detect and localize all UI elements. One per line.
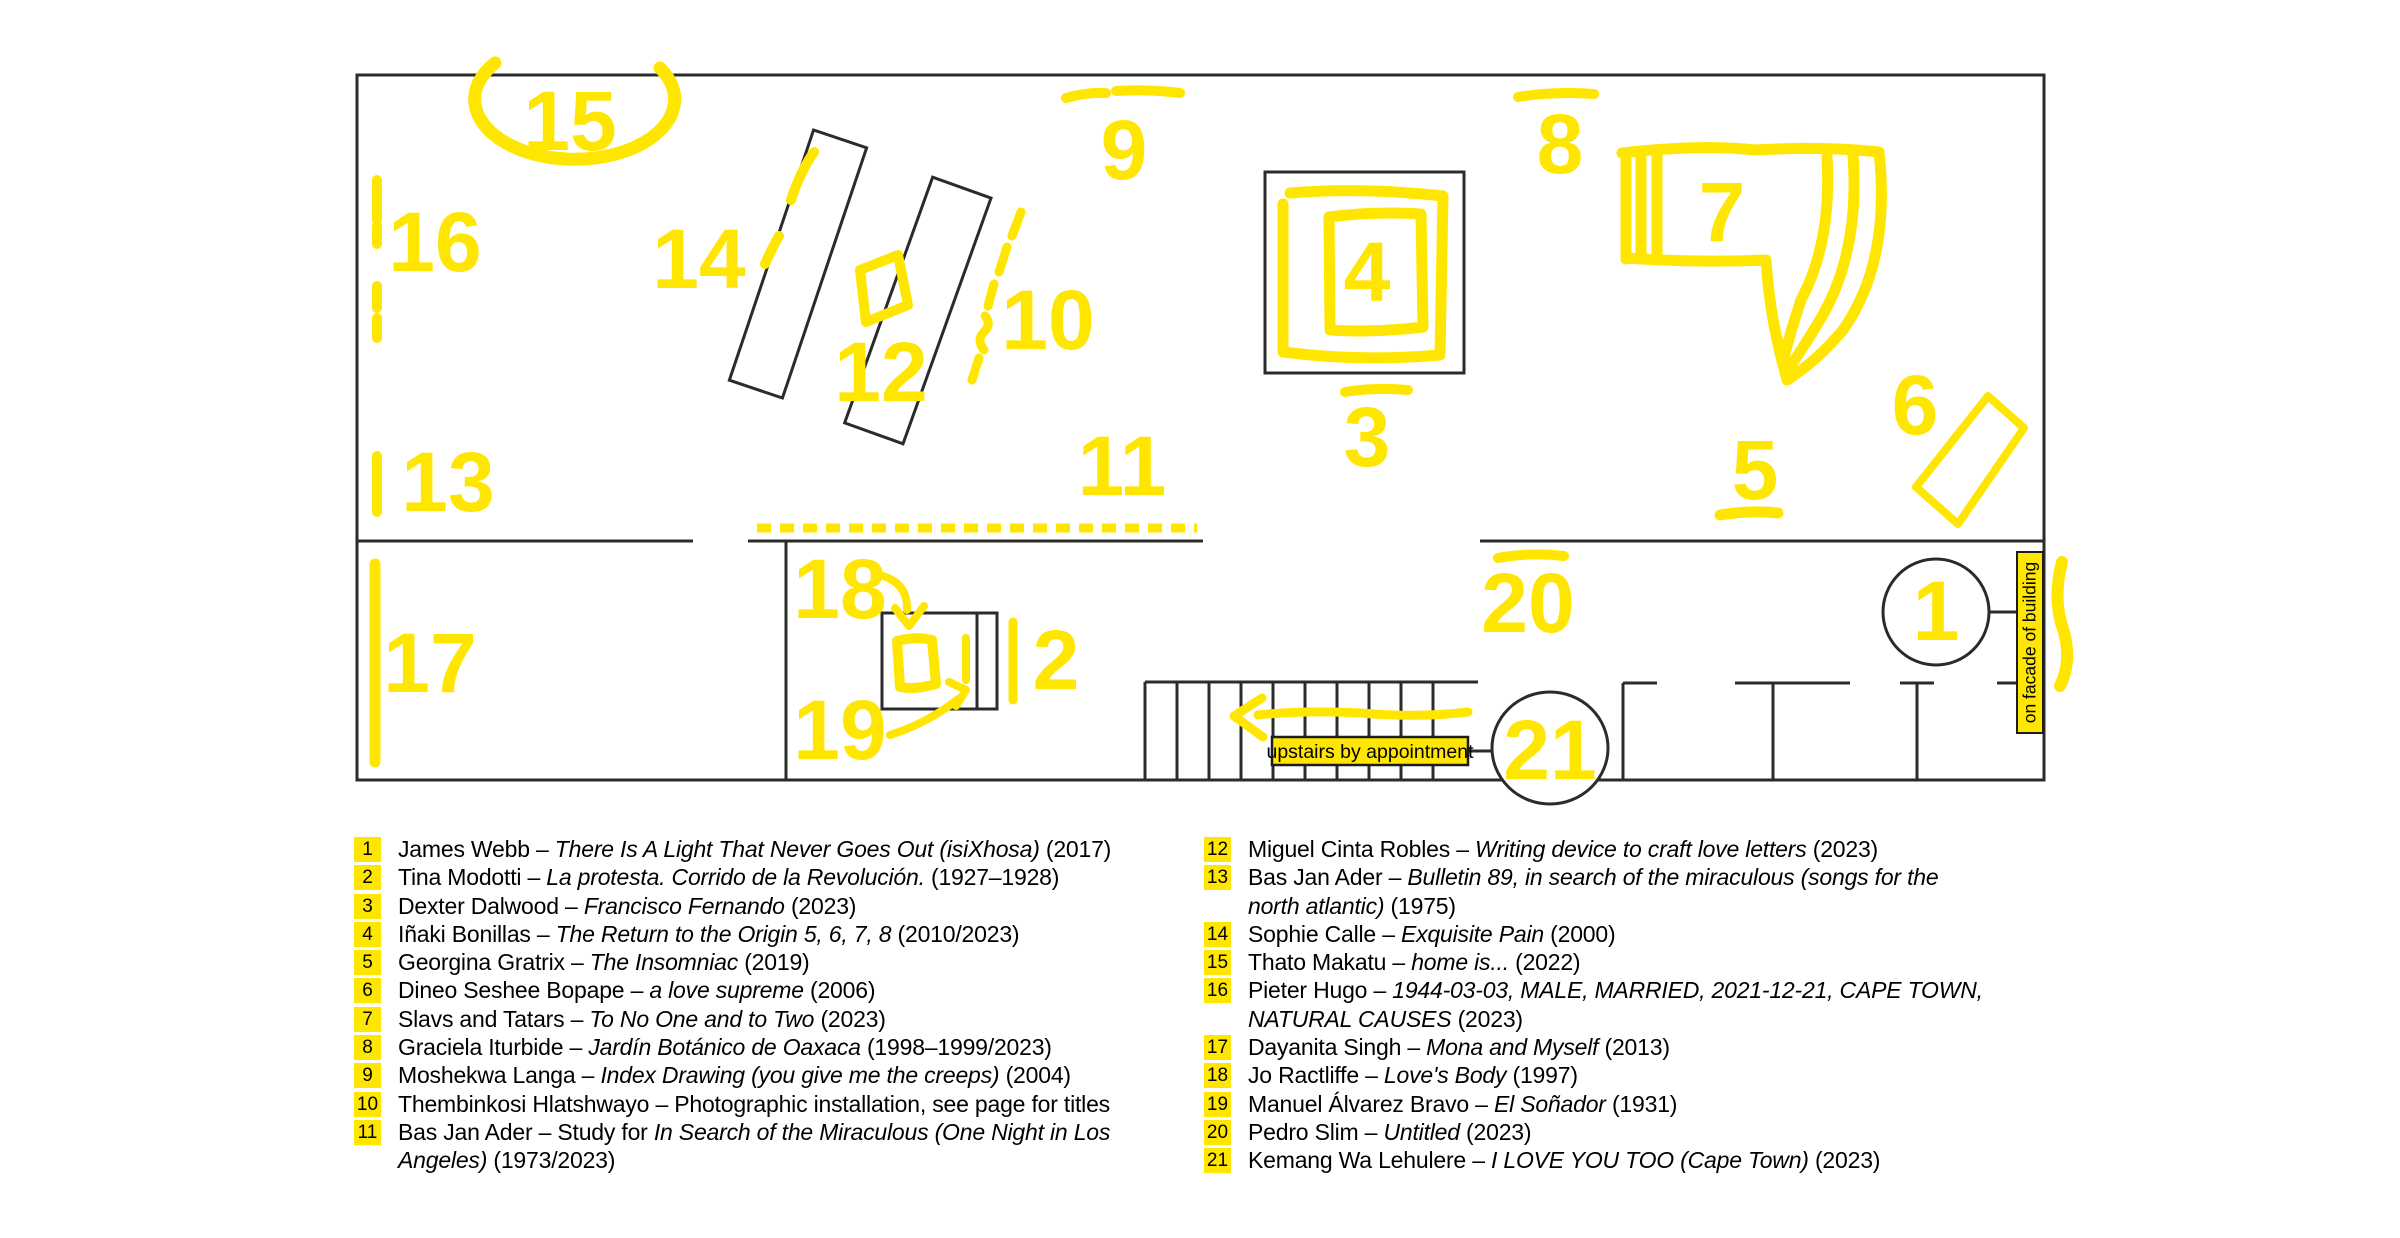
legend-number-badge: 11 [354,1120,381,1145]
plan-marker-6: 6 [1892,358,1939,452]
legend-item: 6Dineo Seshee Bopape – a love supreme (2… [354,977,1111,1005]
upstairs-label: upstairs by appointment [1266,737,1474,765]
walls [357,75,2044,780]
legend-text: Graciela Iturbide – Jardín Botánico de O… [398,1034,1052,1061]
legend-item: 13Bas Jan Ader – Bulletin 89, in search … [1204,864,1983,892]
legend-text: James Webb – There Is A Light That Never… [398,836,1111,863]
plan-marker-4: 4 [1344,225,1391,319]
facade-label-text: on facade of building [2020,562,2041,724]
legend-text: Thembinkosi Hlatshwayo – Photographic in… [398,1091,1110,1118]
plan-marker-9: 9 [1101,103,1148,197]
legend-number-badge: 5 [354,950,381,975]
legend-number-badge: 8 [354,1035,381,1060]
legend-item: 1James Webb – There Is A Light That Neve… [354,836,1111,864]
legend-text: Iñaki Bonillas – The Return to the Origi… [398,921,1019,948]
legend-column-right: 12Miguel Cinta Robles – Writing device t… [1204,836,1983,1176]
legend-item: 17Dayanita Singh – Mona and Myself (2013… [1204,1034,1983,1062]
legend-item: 2Tina Modotti – La protesta. Corrido de … [354,864,1111,892]
legend-item: 15Thato Makatu – home is... (2022) [1204,949,1983,977]
legend-item: 21Kemang Wa Lehulere – I LOVE YOU TOO (C… [1204,1147,1983,1175]
plan-marker-14: 14 [652,212,746,306]
plan-marker-1: 1 [1913,564,1960,658]
legend-text: Moshekwa Langa – Index Drawing (you give… [398,1062,1071,1089]
legend-item: 18Jo Ractliffe – Love's Body (1997) [1204,1062,1983,1090]
legend-number-badge: 4 [354,922,381,947]
legend-number-badge: 13 [1204,865,1231,890]
legend-number-badge: 7 [354,1007,381,1032]
legend-number-badge: 17 [1204,1035,1231,1060]
legend-item: 19Manuel Álvarez Bravo – El Soñador (193… [1204,1091,1983,1119]
legend-item: 9Moshekwa Langa – Index Drawing (you giv… [354,1062,1111,1090]
plan-marker-20: 20 [1481,556,1574,650]
plan-marker-11: 11 [1078,419,1167,513]
legend-text: Miguel Cinta Robles – Writing device to … [1248,836,1878,863]
legend-text: Bas Jan Ader – Bulletin 89, in search of… [1248,864,1938,891]
plan-marker-18: 18 [793,542,886,636]
legend-item: 3Dexter Dalwood – Francisco Fernando (20… [354,893,1111,921]
plan-marker-21: 21 [1503,703,1596,797]
plan-marker-10: 10 [1001,273,1094,367]
legend-text: Jo Ractliffe – Love's Body (1997) [1248,1062,1578,1089]
plan-marker-19: 19 [793,683,886,777]
plan-marker-7: 7 [1699,165,1746,259]
legend-number-badge: 10 [354,1092,381,1117]
partition-1 [1623,683,1657,780]
legend-number-badge: 2 [354,865,381,890]
legend-text: Georgina Gratrix – The Insomniac (2019) [398,949,810,976]
plan-marker-5: 5 [1732,423,1779,517]
legend-text: Bas Jan Ader – Study for In Search of th… [398,1119,1110,1146]
upstairs-label-text: upstairs by appointment [1266,741,1474,763]
legend-column-left: 1James Webb – There Is A Light That Neve… [354,836,1111,1176]
plan-marker-13: 13 [401,435,494,529]
plan-marker-3: 3 [1344,390,1391,484]
legend-item: 5Georgina Gratrix – The Insomniac (2019) [354,949,1111,977]
marker-12-diamond [860,255,908,322]
legend-item: north atlantic) (1975) [1204,893,1983,921]
legend-text: NATURAL CAUSES (2023) [1248,1006,1523,1033]
legend-number-badge: 15 [1204,950,1231,975]
gallery-floor-plan-page: 1 2 3 4 5 6 7 8 9 10 11 12 13 14 15 16 1… [0,0,2400,1238]
legend-text: Dayanita Singh – Mona and Myself (2013) [1248,1034,1670,1061]
legend-item: 16Pieter Hugo – 1944-03-03, MALE, MARRIE… [1204,977,1983,1005]
facade-wavy-line [2057,562,2067,686]
legend-number-badge: 3 [354,894,381,919]
legend-item: Angeles) (1973/2023) [354,1147,1111,1175]
legend-text: Angeles) (1973/2023) [398,1147,615,1174]
legend-number-badge: 6 [354,978,381,1003]
legend-item: 10Thembinkosi Hlatshwayo – Photographic … [354,1091,1111,1119]
legend-text: Thato Makatu – home is... (2022) [1248,949,1580,976]
partition-2 [1735,683,1850,780]
legend-item: 7Slavs and Tatars – To No One and to Two… [354,1006,1111,1034]
legend-number-badge: 16 [1204,978,1231,1003]
legend-item: 20Pedro Slim – Untitled (2023) [1204,1119,1983,1147]
legend-number-badge: 20 [1204,1120,1231,1145]
legend-number-badge: 14 [1204,922,1231,947]
legend-text: Kemang Wa Lehulere – I LOVE YOU TOO (Cap… [1248,1147,1880,1174]
plan-marker-12: 12 [834,325,927,419]
plan-marker-17: 17 [383,616,476,710]
legend-badge-spacer [354,1148,381,1173]
plan-marker-2: 2 [1033,613,1080,707]
plan-marker-15: 15 [523,74,616,168]
legend-number-badge: 21 [1204,1148,1231,1173]
marker-9-overline [1066,90,1180,98]
legend-text: Pieter Hugo – 1944-03-03, MALE, MARRIED,… [1248,977,1983,1004]
legend-badge-spacer [1204,894,1231,919]
partition-3 [1900,683,1934,780]
legend-text: Slavs and Tatars – To No One and to Two … [398,1006,886,1033]
legend-text: Manuel Álvarez Bravo – El Soñador (1931) [1248,1091,1677,1118]
legend-text: north atlantic) (1975) [1248,893,1456,920]
legend-item: 11Bas Jan Ader – Study for In Search of … [354,1119,1111,1147]
legend-text: Dineo Seshee Bopape – a love supreme (20… [398,977,875,1004]
legend-item: 12Miguel Cinta Robles – Writing device t… [1204,836,1983,864]
legend-number-badge: 12 [1204,837,1231,862]
outer-wall [357,75,2044,780]
legend-number-badge: 18 [1204,1063,1231,1088]
facade-label: on facade of building [2016,551,2044,734]
legend-text: Pedro Slim – Untitled (2023) [1248,1119,1531,1146]
plan-marker-8: 8 [1537,97,1584,191]
legend-number-badge: 1 [354,837,381,862]
legend-item: NATURAL CAUSES (2023) [1204,1006,1983,1034]
legend-item: 4Iñaki Bonillas – The Return to the Orig… [354,921,1111,949]
marker-7-shape [1622,148,1881,380]
legend-item: 14Sophie Calle – Exquisite Pain (2000) [1204,921,1983,949]
legend-text: Dexter Dalwood – Francisco Fernando (202… [398,893,856,920]
legend-item: 8Graciela Iturbide – Jardín Botánico de … [354,1034,1111,1062]
legend-badge-spacer [1204,1007,1231,1032]
legend-text: Sophie Calle – Exquisite Pain (2000) [1248,921,1615,948]
legend-number-badge: 19 [1204,1092,1231,1117]
legend-text: Tina Modotti – La protesta. Corrido de l… [398,864,1059,891]
legend-number-badge: 9 [354,1063,381,1088]
plan-markers: 1 2 3 4 5 6 7 8 9 10 11 12 13 14 15 16 1… [383,74,1959,797]
plan-marker-16: 16 [388,195,481,289]
